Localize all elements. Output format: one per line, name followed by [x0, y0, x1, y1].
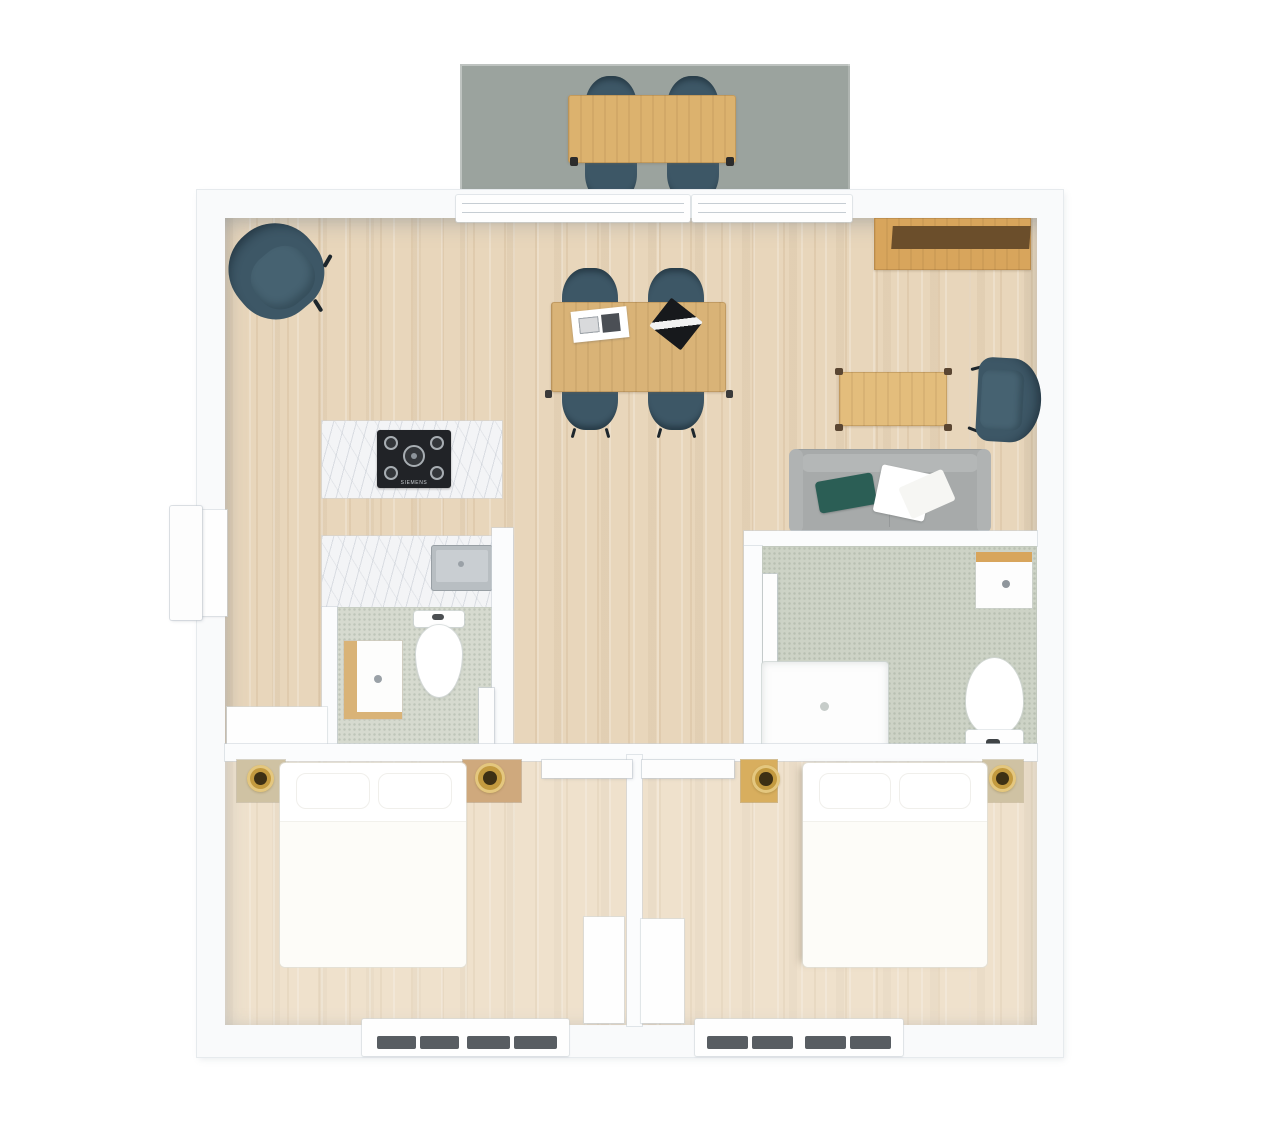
bathroom-right-wall [492, 528, 513, 766]
cooktop-burner [430, 466, 444, 480]
cooktop-burner [384, 466, 398, 480]
wardrobe [584, 917, 624, 1023]
gas-cooktop: SIEMENS [377, 430, 451, 488]
bathroom2-top-wall [744, 531, 1037, 546]
cooktop-brand: SIEMENS [377, 480, 451, 486]
bed-pillow [378, 773, 452, 809]
table-lamp [989, 765, 1016, 792]
table-foot [944, 368, 952, 375]
vanity-knob [374, 675, 382, 683]
lamp-shade-top [759, 772, 772, 785]
window-slat [377, 1036, 416, 1049]
documents [571, 306, 630, 343]
document-print [578, 316, 600, 334]
entry-threshold [199, 510, 227, 616]
document-print [601, 313, 621, 333]
floor-plan-canvas: SIEMENS [0, 0, 1280, 1122]
window-slat [467, 1036, 510, 1049]
bed-pillow [819, 773, 891, 809]
chair-leg [313, 299, 324, 313]
armchair-seat [980, 369, 1025, 431]
kitchen-sink [431, 545, 493, 591]
door-track [462, 212, 684, 213]
table-foot [726, 157, 734, 166]
sink-drain [458, 561, 464, 567]
lamp-shade-top [996, 772, 1009, 785]
window-slat [514, 1036, 557, 1049]
window-slat [805, 1036, 846, 1049]
wardrobe [641, 919, 684, 1023]
double-bed [280, 763, 466, 967]
table-lamp [475, 763, 505, 793]
table-foot [545, 390, 552, 398]
vanity2-knob [1002, 580, 1010, 588]
cooktop-burner [430, 436, 444, 450]
shower-tray [762, 662, 888, 752]
bedroom-left-door [542, 760, 632, 778]
vanity-wood-trim [344, 712, 402, 719]
duvet [280, 821, 466, 967]
chair-leg [322, 254, 332, 268]
door-track [698, 203, 846, 204]
sofa-arm [977, 449, 991, 533]
table-lamp [247, 765, 274, 792]
cooktop-burner [384, 436, 398, 450]
table-foot [835, 368, 843, 375]
door-track [698, 212, 846, 213]
lamp-shade-top [483, 771, 497, 785]
vanity2-wood-top [976, 552, 1032, 562]
bathroom-right-door [763, 574, 777, 668]
table-foot [944, 424, 952, 431]
toilet2-bowl [966, 658, 1023, 736]
sideboard [874, 218, 1031, 270]
sofa-arm [789, 449, 803, 533]
vanity2 [976, 552, 1032, 608]
burner-cap [411, 453, 417, 459]
bed-pillow [899, 773, 971, 809]
sideboard-inset [891, 226, 1031, 249]
shower-drain [820, 702, 829, 711]
double-bed [803, 763, 987, 967]
table-foot [570, 157, 578, 166]
window-slat [850, 1036, 891, 1049]
door-track [462, 203, 684, 204]
toilet-flush-button [432, 614, 444, 620]
table-foot [835, 424, 843, 431]
bed-pillow [296, 773, 370, 809]
window-slat [707, 1036, 748, 1049]
table-foot [726, 390, 733, 398]
bedroom-divider-wall [627, 755, 642, 1026]
sofa [789, 449, 991, 533]
window-slat [752, 1036, 793, 1049]
cooktop-burner-center [403, 445, 425, 467]
table-lamp [752, 765, 780, 793]
lamp-shade-top [254, 772, 267, 785]
hall-dresser [227, 707, 327, 748]
sliding-door-panel [456, 195, 690, 222]
vanity-wood-trim [344, 641, 357, 719]
entry-door [170, 506, 202, 620]
side-armchair [967, 356, 1045, 446]
duvet [803, 821, 987, 967]
vanity-cabinet [344, 641, 402, 719]
window-slat [420, 1036, 459, 1049]
bathroom2-left-wall [744, 546, 762, 756]
bedroom-right-door [642, 760, 734, 778]
sliding-door-panel [692, 195, 852, 222]
coffee-table [839, 372, 947, 426]
deck-dining-table [568, 95, 736, 163]
